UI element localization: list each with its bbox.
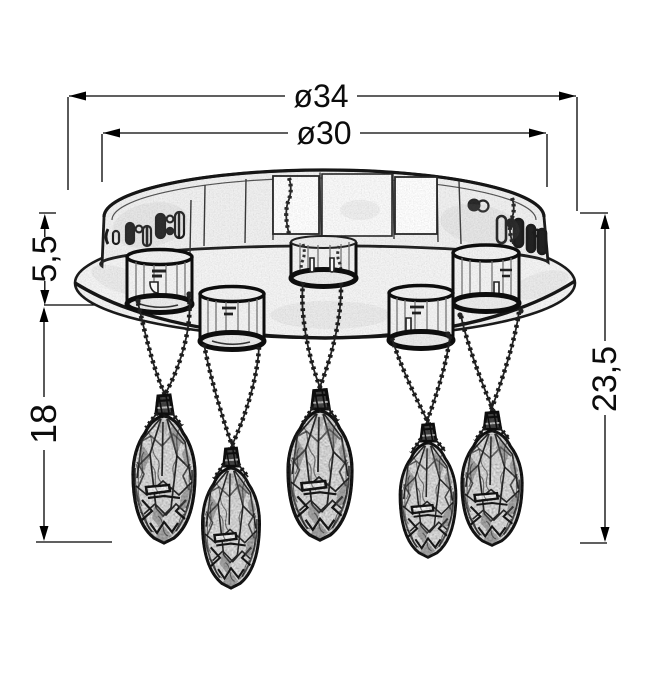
svg-text:ø30: ø30 — [296, 115, 351, 151]
svg-text:18: 18 — [23, 404, 64, 444]
svg-text:5,5: 5,5 — [26, 235, 64, 282]
svg-text:23,5: 23,5 — [586, 346, 624, 412]
svg-text:ø34: ø34 — [293, 78, 348, 114]
